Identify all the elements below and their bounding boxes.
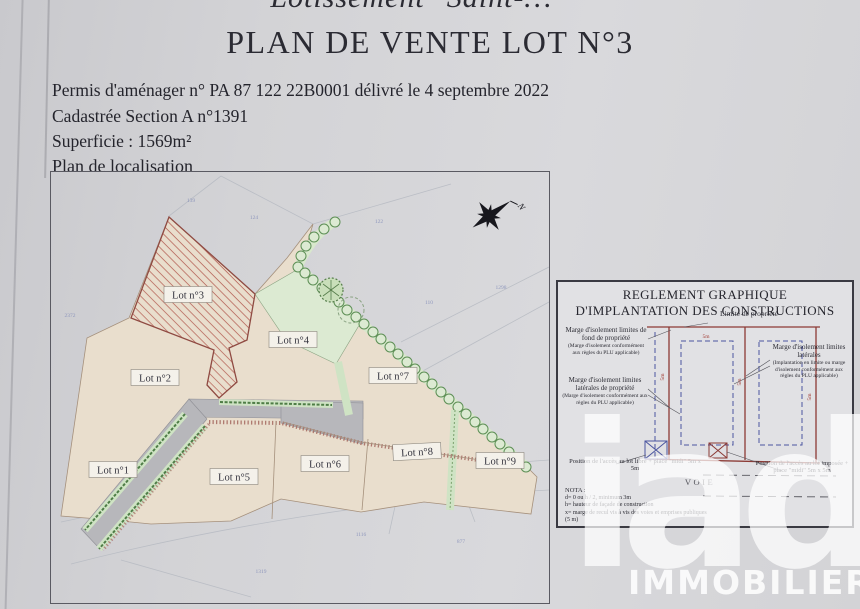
svg-text:5m: 5m — [807, 393, 813, 401]
lot-label: Lot n°7 — [369, 368, 417, 384]
marge-fond-label: Marge d'isolement limites de fond de pro… — [564, 326, 648, 356]
svg-text:877: 877 — [457, 539, 466, 545]
svg-text:1298: 1298 — [496, 285, 507, 291]
nota-line: h= hauteur de façade de construction — [565, 502, 847, 510]
lot-label: Lot n°6 — [301, 456, 349, 472]
svg-text:2372: 2372 — [65, 313, 76, 319]
access-position-boxes — [645, 441, 727, 459]
access-libre-label: Position de l'accès au lot libre + place… — [566, 458, 704, 473]
svg-text:5m: 5m — [737, 378, 743, 386]
lot-label: Lot n°1 — [89, 462, 137, 478]
lot-label: Lot n°9 — [476, 453, 524, 469]
svg-text:124: 124 — [250, 215, 259, 221]
svg-text:Lot n°7: Lot n°7 — [377, 372, 409, 383]
svg-text:Lot n°3: Lot n°3 — [172, 291, 204, 302]
svg-text:139: 139 — [187, 198, 196, 204]
svg-text:Lot n°4: Lot n°4 — [277, 336, 310, 347]
svg-text:Lot n°2: Lot n°2 — [139, 374, 171, 385]
svg-text:Lot n°1: Lot n°1 — [97, 466, 129, 477]
nota-block: NOTA : d= 0 ou h / 2, minimum 3m h= haut… — [565, 487, 847, 525]
marge-laterale-label: Marge d'isolement limites latérales (Imp… — [768, 343, 850, 380]
svg-text:Lot n°8: Lot n°8 — [401, 447, 433, 460]
limite-propriete-label: Limite de propriété — [700, 310, 798, 319]
svg-text:Lot n°9: Lot n°9 — [484, 457, 516, 468]
lot-label: Lot n°2 — [131, 370, 179, 386]
svg-text:122: 122 — [375, 219, 384, 225]
subdivision-name: Lotissement "Saint-…" — [0, 0, 848, 15]
svg-text:110: 110 — [425, 300, 433, 306]
svg-text:Lot n°5: Lot n°5 — [218, 473, 250, 484]
svg-text:1116: 1116 — [356, 532, 367, 538]
lot-label: Lot n°8 — [393, 442, 442, 460]
permit-line: Permis d'aménager n° PA 87 122 22B0001 d… — [52, 80, 549, 101]
cadastre-line: Cadastrée Section A n°1391 — [52, 106, 248, 127]
svg-text:5m: 5m — [702, 334, 710, 340]
legend-box: REGLEMENT GRAPHIQUE D'IMPLANTATION DES C… — [556, 280, 854, 528]
immobilier-watermark: IMMOBILIER — [628, 563, 860, 602]
location-map-frame: Lot n°1 Lot n°2 Lot n°3 Lot n°4 Lot n°5 … — [50, 171, 550, 604]
svg-text:Lot n°6: Lot n°6 — [309, 460, 341, 471]
svg-text:1319: 1319 — [256, 569, 267, 575]
nota-line: (5 m) — [565, 517, 847, 525]
site-plan-svg: Lot n°1 Lot n°2 Lot n°3 Lot n°4 Lot n°5 … — [51, 172, 549, 603]
svg-text:5m: 5m — [660, 373, 666, 381]
voie-label: VOIE — [685, 477, 715, 487]
nota-line: x= marge de recul vis à vis des voies et… — [565, 510, 847, 518]
clipped-subdivision-title: Lotissement "Saint-…" — [0, 0, 860, 15]
compass-rose-icon: N — [463, 181, 529, 242]
compass-north-label: N — [515, 201, 528, 213]
lot-label: Lot n°3 — [164, 287, 212, 303]
page-title: PLAN DE VENTE LOT N°3 — [0, 24, 860, 61]
scanned-plan-document: Lotissement "Saint-…" PLAN DE VENTE LOT … — [0, 0, 860, 609]
lot-label: Lot n°5 — [210, 469, 258, 485]
paper-edge-line — [4, 0, 24, 609]
nota-title: NOTA : — [565, 487, 847, 495]
lot-label: Lot n°4 — [269, 332, 317, 348]
access-impose-label: Position de l'accès au lot imposée + pla… — [754, 460, 850, 475]
marge-laterale-propriete-label: Marge d'isolement limites latérales de p… — [562, 376, 648, 406]
area-line: Superficie : 1569m² — [52, 131, 191, 152]
